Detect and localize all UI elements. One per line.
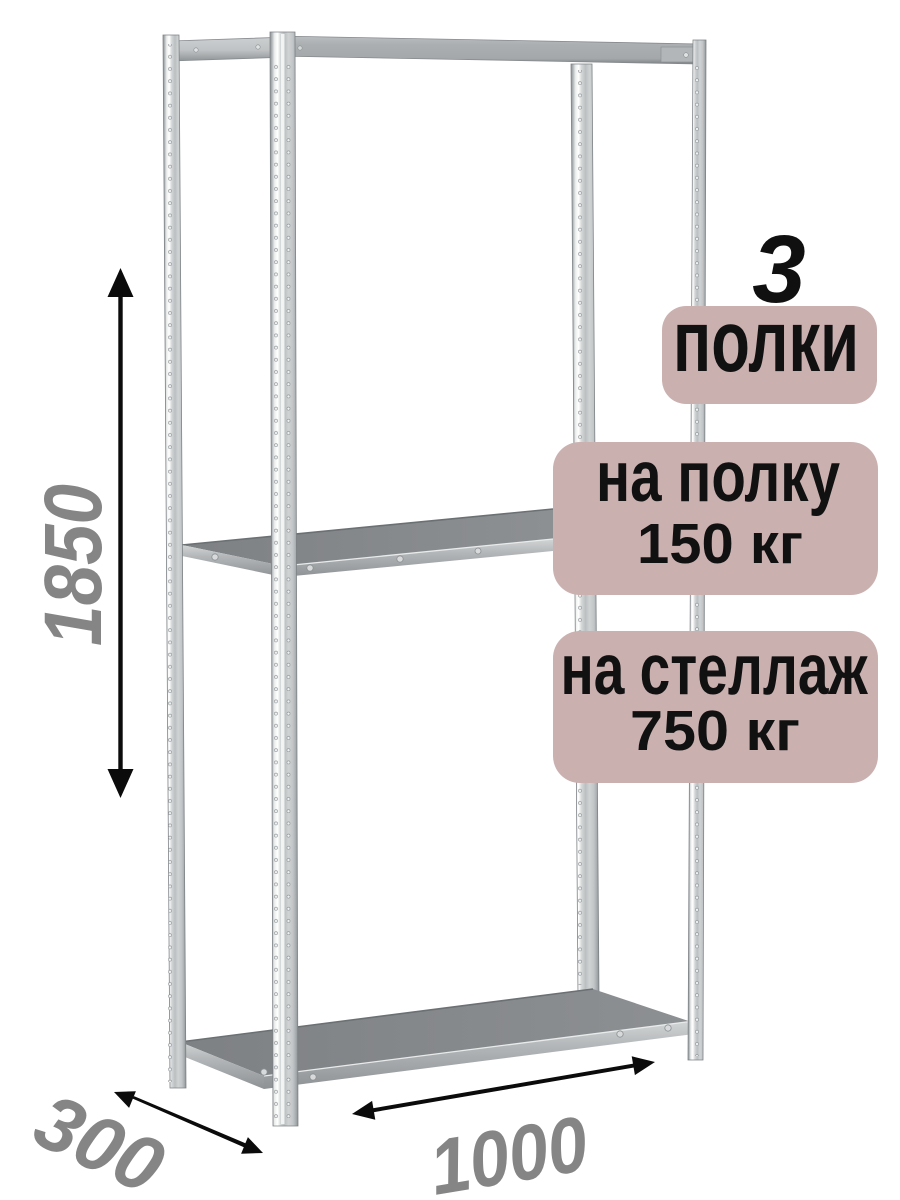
- svg-text:750 кг: 750 кг: [630, 699, 800, 763]
- svg-text:полки: полки: [673, 293, 859, 390]
- svg-text:1850: 1850: [28, 484, 119, 646]
- svg-text:на полку: на полку: [596, 438, 840, 517]
- svg-text:150 кг: 150 кг: [637, 512, 803, 576]
